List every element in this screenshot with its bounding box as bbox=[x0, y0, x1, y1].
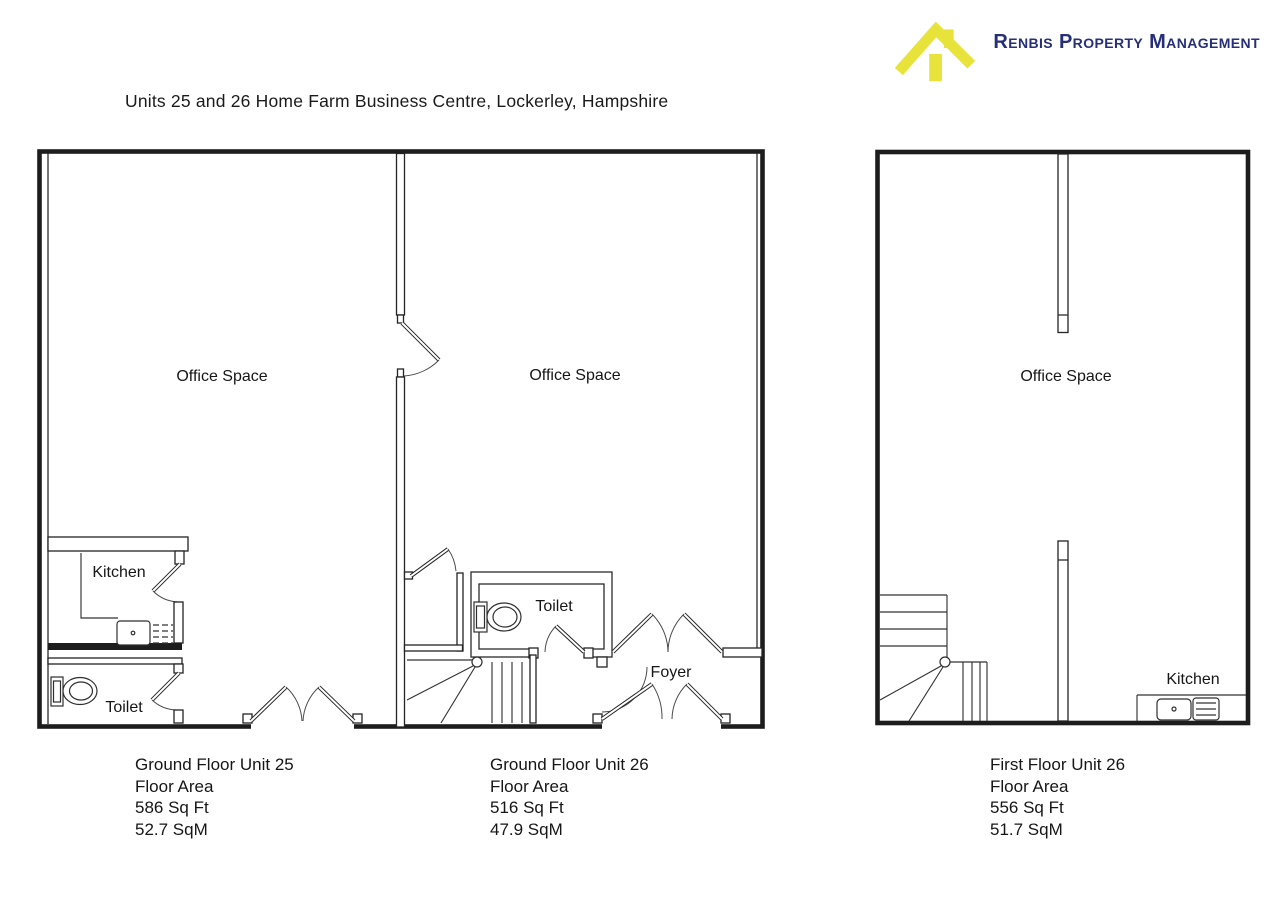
unit25-toilet-label: Toilet bbox=[105, 699, 143, 716]
plan-ground-floor: Kitchen Toilet bbox=[40, 152, 763, 730]
unit26-store bbox=[405, 549, 464, 651]
caption-line: First Floor Unit 26 bbox=[990, 754, 1125, 776]
unit25-kitchen: Kitchen bbox=[48, 537, 188, 650]
unit25-office-label: Office Space bbox=[176, 368, 267, 385]
caption-first-floor-unit-26: First Floor Unit 26 Floor Area 556 Sq Ft… bbox=[990, 754, 1125, 840]
unit25-entrance-doors bbox=[243, 687, 362, 723]
caption-ground-floor-unit-26: Ground Floor Unit 26 Floor Area 516 Sq F… bbox=[490, 754, 649, 840]
unit26-stairs bbox=[407, 655, 536, 723]
caption-line: 52.7 SqM bbox=[135, 819, 294, 841]
caption-line: Floor Area bbox=[990, 776, 1125, 798]
plan-first-floor: Kitchen Office Space bbox=[878, 152, 1249, 723]
unit26-foyer: Foyer bbox=[593, 614, 762, 723]
first-floor-stairs bbox=[880, 595, 987, 721]
floorplan-page: { "header": { "brand": "Renbis Property … bbox=[0, 0, 1280, 905]
caption-line: 47.9 SqM bbox=[490, 819, 649, 841]
unit25-toilet: Toilet bbox=[48, 658, 183, 723]
door-between-units bbox=[402, 323, 439, 376]
caption-line: 586 Sq Ft bbox=[135, 797, 294, 819]
unit25-kitchen-label: Kitchen bbox=[92, 564, 145, 581]
caption-line: Floor Area bbox=[135, 776, 294, 798]
caption-line: 516 Sq Ft bbox=[490, 797, 649, 819]
unit26-office-label: Office Space bbox=[529, 367, 620, 384]
first-floor-office-label: Office Space bbox=[1020, 368, 1111, 385]
unit26-toilet-label: Toilet bbox=[535, 598, 573, 615]
unit26-toilet: Toilet bbox=[471, 572, 612, 658]
caption-line: 556 Sq Ft bbox=[990, 797, 1125, 819]
caption-line: Floor Area bbox=[490, 776, 649, 798]
caption-line: Ground Floor Unit 26 bbox=[490, 754, 649, 776]
first-floor-kitchen-label: Kitchen bbox=[1166, 671, 1219, 688]
caption-line: Ground Floor Unit 25 bbox=[135, 754, 294, 776]
caption-line: 51.7 SqM bbox=[990, 819, 1125, 841]
caption-ground-floor-unit-25: Ground Floor Unit 25 Floor Area 586 Sq F… bbox=[135, 754, 294, 840]
first-floor-kitchen: Kitchen bbox=[1137, 671, 1246, 721]
foyer-label: Foyer bbox=[651, 664, 693, 681]
